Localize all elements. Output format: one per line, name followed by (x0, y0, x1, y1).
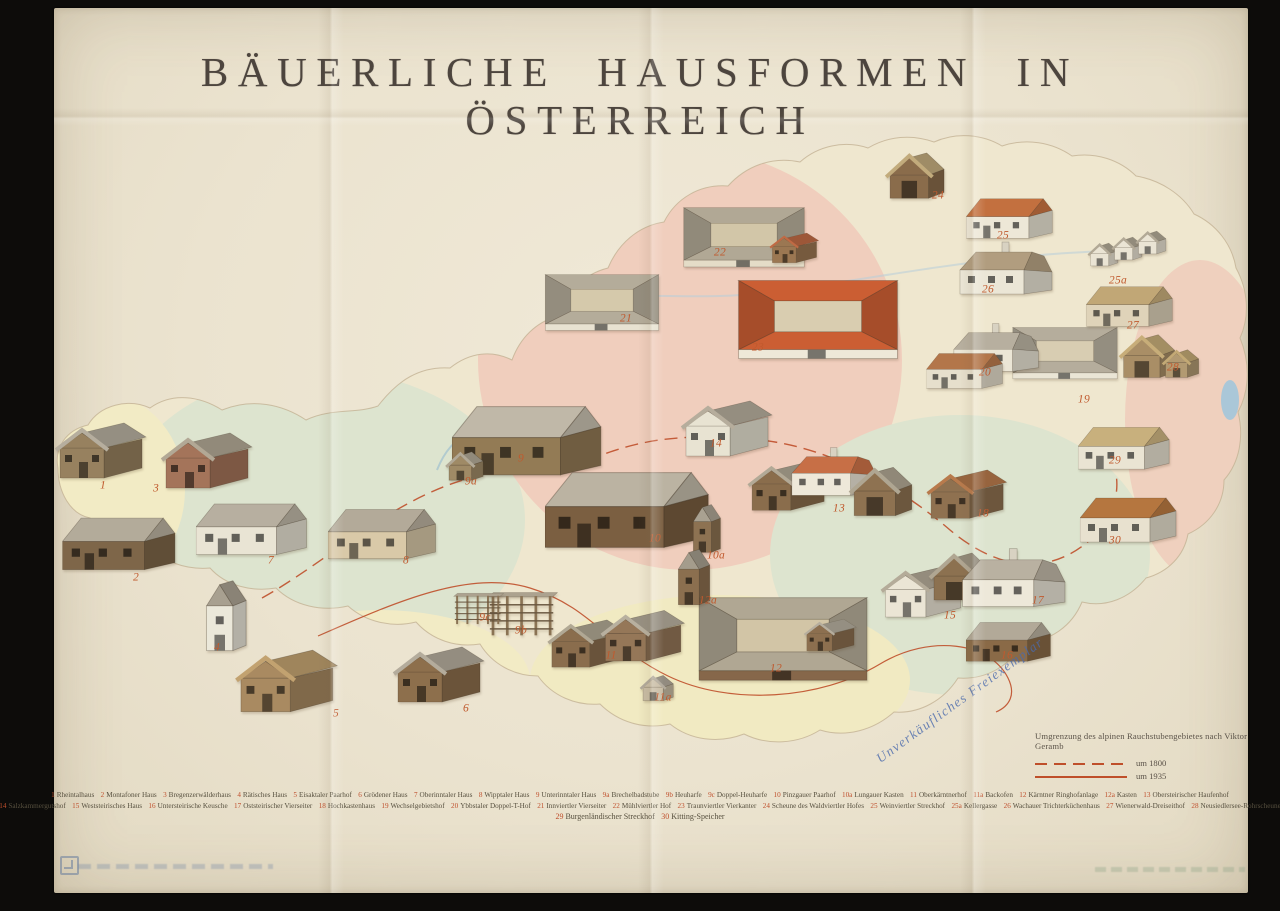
legend-item-name: Backofen (985, 791, 1013, 799)
house-number-20: 20 (979, 366, 991, 378)
publisher-logo (60, 856, 79, 875)
legend-line-1: 1Rheintalhaus2Montafoner Haus3Bregenzerw… (48, 791, 1232, 799)
legend-item: 24Scheune des Waldviertler Hofes (763, 802, 864, 810)
house-illustration-14 (678, 392, 778, 458)
house-number-10: 10 (649, 532, 661, 544)
legend-item: 6Grödener Haus (358, 791, 407, 799)
legend-item-number: 9 (536, 791, 540, 799)
house-number-24: 24 (932, 189, 944, 201)
legend-item-number: 9a (603, 791, 610, 799)
legend-item: 9aBrechelbadstube (603, 791, 660, 799)
legend-item-name: Brechelbadstube (611, 791, 659, 799)
house-illustration-25a (1134, 228, 1172, 257)
legend-item-number: 10 (774, 791, 781, 799)
legend-item-name: Kellergasse (964, 802, 997, 810)
legend-item-number: 25 (870, 802, 877, 810)
legend-item-name: Obersteirischer Haufenhof (1152, 791, 1228, 799)
house-illustration-26 (958, 236, 1058, 298)
legend-item: 15Weststeirisches Haus (72, 802, 142, 810)
house-illustration-6 (390, 638, 490, 704)
boundary-line-swatch-solid (1035, 776, 1127, 778)
legend-item-name: Wipptaler Haus (484, 791, 529, 799)
legend-item-number: 10a (842, 791, 852, 799)
legend-item: 25Weinviertler Streckhof (870, 802, 945, 810)
legend-item: 10Pinzgauer Paarhof (774, 791, 836, 799)
legend-item-number: 14 (0, 802, 6, 810)
legend-item-name: Bregenzerwälderhaus (169, 791, 231, 799)
boundary-line-label: um 1800 (1136, 758, 1166, 768)
legend-item-name: Wienerwald-Dreiseithof (1115, 802, 1185, 810)
imprint-right (1095, 867, 1245, 872)
house-number-5: 5 (333, 707, 339, 719)
legend-item-name: Unterinntaler Haus (541, 791, 596, 799)
legend-item: 18Hochkastenhaus (319, 802, 375, 810)
legend-item: 29Burgenländischer Streckhof (555, 812, 654, 821)
house-illustration-25 (966, 188, 1056, 240)
legend-item-number: 28 (1191, 802, 1198, 810)
legend-item-number: 17 (234, 802, 241, 810)
legend-item: 28Neusiedlersee-Rohrscheune (1191, 802, 1280, 810)
house-number-28: 28 (1167, 361, 1179, 373)
legend-item-name: Mühlviertler Hof (622, 802, 671, 810)
legend-item-name: Rheintalhaus (57, 791, 95, 799)
legend-item: 13Obersteirischer Haufenhof (1143, 791, 1229, 799)
house-illustration-8 (328, 496, 440, 561)
boundary-line-label: um 1935 (1136, 771, 1166, 781)
rauchstuben-legend-rows: um 1800um 1935 (1035, 758, 1265, 784)
legend-item-name: Kitting-Speicher (671, 812, 724, 821)
legend-item: 7Oberinntaler Haus (414, 791, 472, 799)
legend-item-number: 26 (1004, 802, 1011, 810)
house-number-14: 14 (710, 437, 722, 449)
legend-item: 5Eisaktaler Paarhof (293, 791, 351, 799)
house-number-2: 2 (133, 571, 139, 583)
legend-item-number: 3 (163, 791, 167, 799)
legend-item-number: 16 (148, 802, 155, 810)
house-illustration-3 (158, 424, 258, 490)
legend-item: 1Rheintalhaus (51, 791, 94, 799)
legend-item-name: Traunviertler Vierkanter (687, 802, 757, 810)
house-number-13: 13 (833, 502, 845, 514)
legend-item-number: 18 (319, 802, 326, 810)
house-number-30: 30 (1109, 534, 1121, 546)
legend-item: 30Kitting-Speicher (661, 812, 724, 821)
legend-item: 8Wipptaler Haus (479, 791, 530, 799)
legend-item-number: 8 (479, 791, 483, 799)
house-illustration-9c (452, 590, 504, 626)
rauchstuben-legend-heading: Umgrenzung des alpinen Rauchstubengebiet… (1035, 731, 1265, 751)
legend-item: 22Mühlviertler Hof (613, 802, 672, 810)
house-number-4: 4 (214, 641, 220, 653)
house-illustration-2 (62, 504, 180, 572)
legend-item: 9bHeuharfe (666, 791, 702, 799)
legend-item-number: 12 (1019, 791, 1026, 799)
legend-item-number: 29 (555, 812, 563, 821)
house-number-11a: 11a (654, 691, 671, 703)
legend-item-name: Kärntner Ringhofanlage (1028, 791, 1098, 799)
legend-item-name: Oststeirischer Vierseiter (243, 802, 312, 810)
house-number-26: 26 (982, 283, 994, 295)
photo-background: 1234567899a9b9c1010a1111a1212a1314151617… (0, 0, 1280, 911)
legend-item-number: 6 (358, 791, 362, 799)
house-number-21: 21 (620, 312, 632, 324)
legend-item: 26Wachauer Trichterküchenhaus (1004, 802, 1100, 810)
legend-item-name: Weinviertler Streckhof (880, 802, 945, 810)
house-number-9a: 9a (465, 475, 477, 487)
legend-item-name: Grödener Haus (364, 791, 408, 799)
legend-item: 10aLungauer Kasten (842, 791, 904, 799)
legend-item-number: 11a (973, 791, 983, 799)
legend-item-number: 19 (381, 802, 388, 810)
house-illustration-7 (196, 490, 311, 557)
legend-item-number: 11 (910, 791, 917, 799)
legend-item-number: 2 (101, 791, 105, 799)
house-number-18: 18 (977, 507, 989, 519)
legend-item-number: 30 (661, 812, 669, 821)
legend-item-name: Lungauer Kasten (854, 791, 903, 799)
legend-line-2: 14Salzkammergutshof15Weststeirisches Hau… (0, 802, 1280, 810)
house-illustration-20 (926, 344, 1006, 390)
legend-item: 9cDoppel-Heuharfe (708, 791, 767, 799)
legend-item-number: 24 (763, 802, 770, 810)
legend-item: 16Untersteirische Keusche (148, 802, 227, 810)
legend-item-number: 12a (1105, 791, 1115, 799)
house-illustration-30 (1080, 486, 1180, 544)
legend-item-number: 9c (708, 791, 715, 799)
house-illustration-13 (848, 464, 920, 522)
legend-item: 3Bregenzerwälderhaus (163, 791, 231, 799)
rauchstuben-legend-entry: um 1935 (1035, 771, 1265, 784)
legend-item: 11Oberkärntnerhof (910, 791, 967, 799)
legend-item-name: Wechselgebietshof (391, 802, 445, 810)
house-illustration-5 (232, 640, 344, 714)
legend-item: 21Innviertler Vierseiter (537, 802, 606, 810)
house-illustration-12 (802, 614, 860, 652)
house-number-9b: 9b (515, 624, 527, 636)
legend-item-name: Ybbstaler Doppel-T-Hof (460, 802, 531, 810)
house-number-27: 27 (1127, 319, 1139, 331)
legend-item-name: Scheune des Waldviertler Hofes (772, 802, 864, 810)
legend-item: 12Kärntner Ringhofanlage (1019, 791, 1098, 799)
legend-item-name: Wachauer Trichterküchenhaus (1013, 802, 1100, 810)
legend-item-name: Rätisches Haus (243, 791, 287, 799)
house-number-3: 3 (153, 482, 159, 494)
house-number-9: 9 (518, 452, 524, 464)
legend-item-name: Neusiedlersee-Rohrscheune (1201, 802, 1280, 810)
legend-item-name: Doppel-Heuharfe (717, 791, 767, 799)
house-number-19: 19 (1078, 393, 1090, 405)
house-illustration-1 (52, 414, 152, 480)
legend-item-number: 22 (613, 802, 620, 810)
legend-item-number: 27 (1106, 802, 1113, 810)
poster-title: BÄUERLICHE HAUSFORMEN IN ÖSTERREICH (60, 48, 1220, 144)
legend-line-3: 29Burgenländischer Streckhof30Kitting-Sp… (552, 812, 727, 821)
legend-item-number: 9b (666, 791, 673, 799)
legend-item-name: Heuharfe (675, 791, 702, 799)
legend-item: 2Montafoner Haus (101, 791, 157, 799)
house-number-9c: 9c (479, 611, 491, 623)
legend-item-number: 13 (1143, 791, 1150, 799)
house-illustration-29 (1078, 416, 1173, 471)
legend-item: 17Oststeirischer Vierseiter (234, 802, 312, 810)
house-illustration-22 (768, 228, 822, 264)
legend-item: 12aKasten (1105, 791, 1137, 799)
legend-item-name: Innviertler Vierseiter (546, 802, 606, 810)
legend-item-name: Hochkastenhaus (328, 802, 375, 810)
house-number-11: 11 (605, 649, 616, 661)
legend-item-name: Untersteirische Keusche (158, 802, 228, 810)
legend-item-name: Eisaktaler Paarhof (299, 791, 352, 799)
legend-item-number: 23 (678, 802, 685, 810)
legend-item: 14Salzkammergutshof (0, 802, 66, 810)
legend-item: 9Unterinntaler Haus (536, 791, 596, 799)
legend-item-number: 20 (451, 802, 458, 810)
legend-item-number: 5 (293, 791, 297, 799)
legend-item: 4Rätisches Haus (237, 791, 287, 799)
house-number-6: 6 (463, 702, 469, 714)
legend-item-name: Pinzgauer Paarhof (783, 791, 836, 799)
house-number-8: 8 (403, 554, 409, 566)
legend-item-name: Salzkammergutshof (8, 802, 65, 810)
house-number-12: 12 (770, 662, 782, 674)
house-illustration-18 (924, 462, 1012, 520)
house-number-17: 17 (1032, 594, 1044, 606)
legend-item-name: Burgenländischer Streckhof (565, 812, 654, 821)
house-number-15: 15 (944, 609, 956, 621)
legend-item-name: Oberkärntnerhof (919, 791, 967, 799)
house-illustration-21 (538, 260, 666, 335)
imprint-left (78, 864, 273, 869)
house-number-22: 22 (714, 246, 726, 258)
legend-item: 25aKellergasse (951, 802, 997, 810)
legend-item: 11aBackofen (973, 791, 1013, 799)
house-number-1: 1 (100, 479, 106, 491)
legend-item: 27Wienerwald-Dreiseithof (1106, 802, 1185, 810)
legend-item: 23Traunviertler Vierkanter (678, 802, 757, 810)
house-number-23: 23 (752, 341, 764, 353)
house-number-7: 7 (268, 554, 274, 566)
house-number-29: 29 (1109, 454, 1121, 466)
legend-item-name: Weststeirisches Haus (81, 802, 142, 810)
legend-item: 20Ybbstaler Doppel-T-Hof (451, 802, 531, 810)
legend-item-number: 7 (414, 791, 418, 799)
legend-item-number: 15 (72, 802, 79, 810)
legend-item-number: 4 (237, 791, 241, 799)
boundary-line-swatch-dashed (1035, 763, 1127, 765)
legend-item-name: Montafoner Haus (106, 791, 157, 799)
legend-item-number: 1 (51, 791, 55, 799)
house-illustration-17 (960, 542, 1072, 611)
house-number-12a: 12a (699, 594, 717, 606)
legend-item-number: 21 (537, 802, 544, 810)
legend-item-name: Kasten (1117, 791, 1137, 799)
rauchstuben-legend: Umgrenzung des alpinen Rauchstubengebiet… (1035, 731, 1265, 784)
legend-item: 19Wechselgebietshof (381, 802, 444, 810)
legend-item-number: 25a (951, 802, 961, 810)
legend-item-name: Oberinntaler Haus (420, 791, 473, 799)
rauchstuben-legend-entry: um 1800 (1035, 758, 1265, 771)
